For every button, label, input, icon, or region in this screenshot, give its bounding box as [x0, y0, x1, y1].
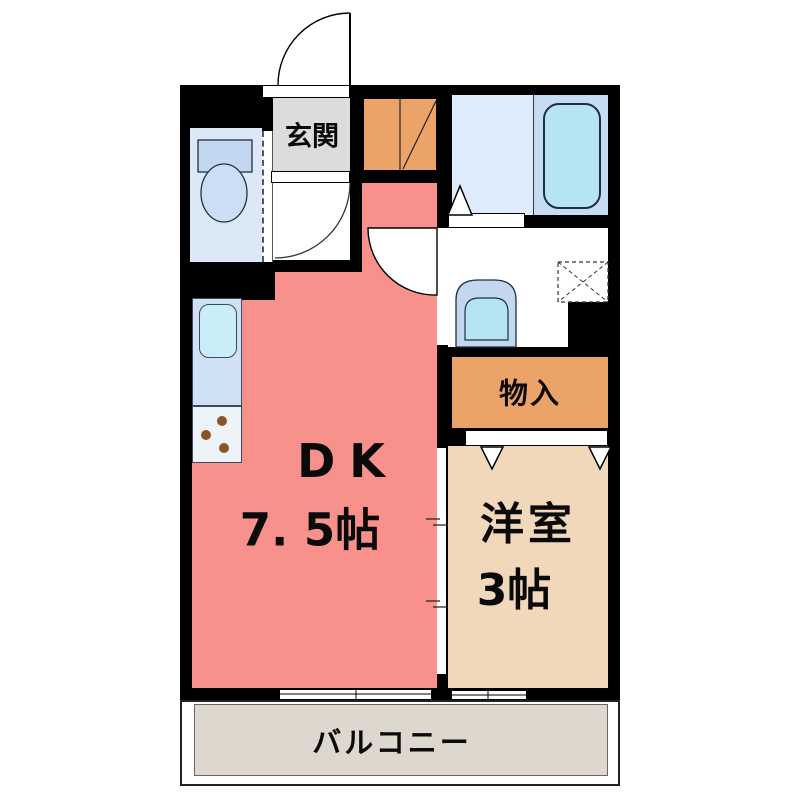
sliding-door-ticks — [426, 519, 448, 607]
western-room-label: 洋室 — [480, 503, 576, 547]
shoe-cabinet-diagonal — [403, 101, 436, 169]
stove-burner-2 — [201, 430, 211, 440]
western-room-size-label: 3帖 — [477, 569, 552, 613]
washbasin-bowl-icon — [465, 298, 508, 340]
window-midlines — [280, 689, 526, 700]
folding-bath-door-icon — [448, 186, 472, 215]
stove-burner-1 — [217, 416, 227, 426]
plan-symbols-layer — [0, 0, 800, 800]
closet-triangle-right-icon — [589, 447, 611, 469]
dk-label: DK — [297, 438, 399, 484]
entrance-door-swing-icon — [278, 13, 350, 85]
closet-triangle-left-icon — [481, 447, 503, 469]
storage-label: 物入 — [499, 380, 561, 409]
balcony-label: バルコニー — [312, 729, 471, 758]
dk-size-label: 7. 5帖 — [240, 508, 380, 553]
genkan-label: 玄関 — [285, 124, 339, 151]
stove-burner-3 — [219, 443, 229, 453]
dk-door-swing-icon — [368, 228, 437, 295]
toilet-bowl-icon — [201, 164, 247, 222]
floor-plan: 玄関 DK 7. 5帖 物入 洋室 3帖 バルコニー — [0, 0, 800, 800]
hallway-door-swing-icon — [275, 183, 350, 258]
